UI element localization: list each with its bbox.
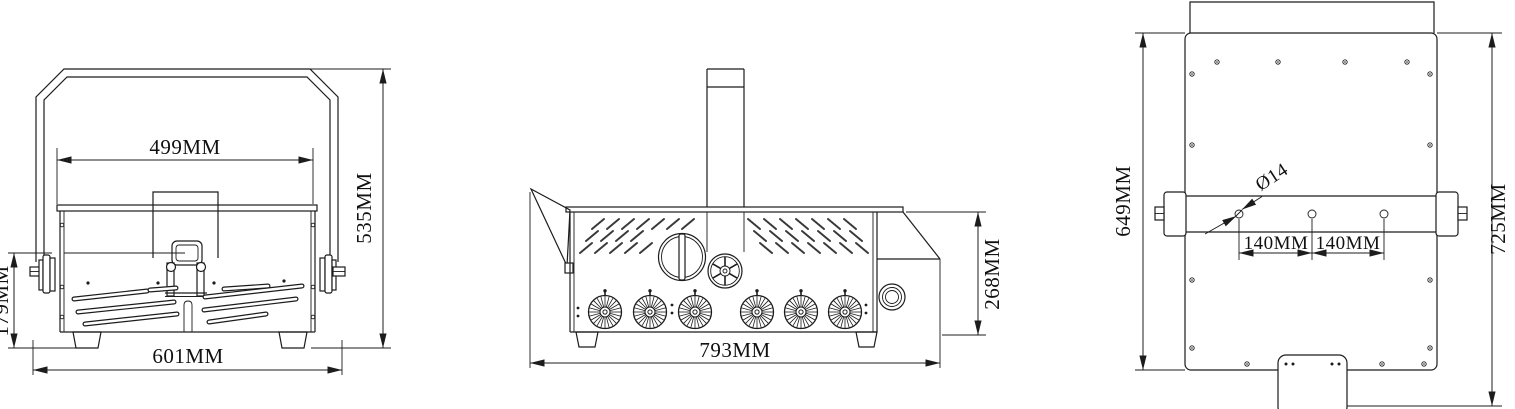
front-vent-slots (74, 286, 302, 324)
right-yoke-knob (320, 255, 345, 293)
front-body (57, 192, 317, 348)
front-dimensions: 499MM 535MM 179MM 601MM (0, 69, 391, 375)
front-right-foot (279, 332, 307, 348)
side-right-flap (903, 212, 940, 259)
dimension-total-length: 725MM (1486, 183, 1510, 254)
side-view: 793MM 268MM (530, 69, 1004, 368)
dimension-cover-width: 499MM (149, 135, 220, 159)
three-view-technical-drawing: 499MM 535MM 179MM 601MM (0, 0, 1515, 409)
mounting-hole (1235, 210, 1243, 218)
front-wall-screws (60, 223, 315, 319)
front-bracket (165, 263, 207, 297)
power-connector (879, 284, 905, 310)
front-face-rivets (86, 279, 285, 284)
front-view: 499MM 535MM 179MM 601MM (0, 69, 391, 375)
dimension-body-height: 268MM (980, 238, 1004, 309)
front-left-foot (73, 332, 101, 348)
side-latch (565, 263, 573, 273)
dimension-lower-height: 179MM (0, 265, 13, 336)
left-yoke-knob (30, 255, 55, 293)
top-chimney (1190, 2, 1434, 33)
hanging-yoke (36, 69, 338, 262)
dimension-overall-length: 793MM (699, 338, 770, 362)
dimension-overall-width: 601MM (152, 344, 223, 368)
technical-drawing-canvas: 499MM 535MM 179MM 601MM (0, 0, 1515, 409)
dimension-panel-length: 649MM (1111, 165, 1135, 236)
mounting-hole (1380, 210, 1388, 218)
hand-wheel (708, 254, 742, 288)
mounting-hole (1308, 210, 1316, 218)
bottom-bracket (1278, 355, 1347, 409)
top-panel (1185, 33, 1437, 370)
damper-knob (659, 234, 706, 281)
fan-grilles (589, 289, 862, 328)
side-body (566, 207, 940, 347)
dimension-overall-height: 535MM (352, 172, 376, 243)
side-right-foot (856, 332, 877, 347)
side-left-foot (576, 332, 598, 347)
side-dimensions: 793MM 268MM (530, 192, 1004, 368)
dimension-hole-spacing-left: 140MM (1244, 233, 1309, 254)
side-vent-slots (580, 219, 868, 253)
top-view: 649MM 725MM 140MM 140MM Ø14 (1111, 2, 1510, 409)
chimney-duct (707, 69, 744, 252)
side-left-flap (531, 189, 570, 266)
dimension-hole-spacing-right: 140MM (1316, 233, 1381, 254)
